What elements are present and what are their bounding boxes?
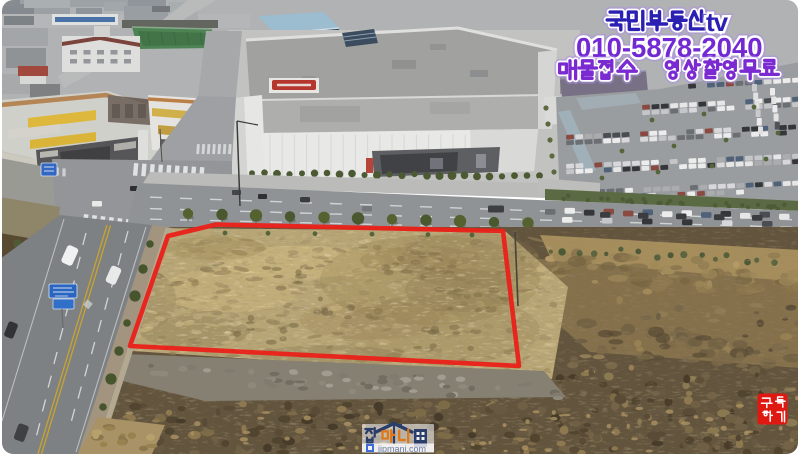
svg-text:jipmani.com: jipmani.com	[377, 444, 426, 454]
